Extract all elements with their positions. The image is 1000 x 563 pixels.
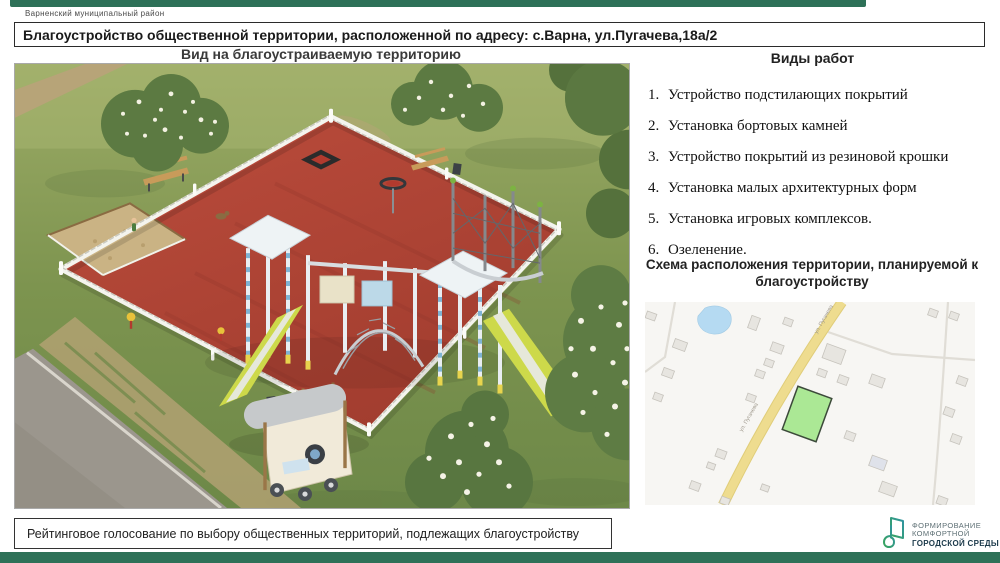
slide: Варненский муниципальный район Благоустр… — [0, 0, 1000, 563]
slide-title: Благоустройство общественной территории,… — [15, 27, 717, 43]
top-accent-bar — [10, 0, 866, 7]
works-item: 4.Установка малых архитектурных форм — [648, 179, 988, 197]
works-item-label: Установка малых архитектурных форм — [668, 180, 917, 196]
trash-bin — [452, 163, 461, 175]
map-heading: Схема расположения территории, планируем… — [642, 256, 982, 290]
fkgs-logo-text: ФОРМИРОВАНИЕ КОМФОРТНОЙ ГОРОДСКОЙ СРЕДЫ — [912, 518, 999, 549]
works-item-number: 5. — [648, 210, 668, 228]
location-map-art: ул. Пугачева ул. Пугачева — [645, 302, 975, 505]
fkgs-logo: ФОРМИРОВАНИЕ КОМФОРТНОЙ ГОРОДСКОЙ СРЕДЫ — [881, 514, 999, 552]
logo-line3: ГОРОДСКОЙ СРЕДЫ — [912, 540, 999, 549]
bottom-accent-bar — [0, 552, 1000, 563]
works-item-label: Установка бортовых камней — [668, 118, 848, 134]
works-item: 5.Установка игровых комплексов. — [648, 210, 988, 228]
pond — [698, 306, 732, 334]
works-heading: Виды работ — [640, 50, 985, 66]
works-item-label: Устройство покрытий из резиновой крошки — [668, 149, 948, 165]
municipality-label: Варненский муниципальный район — [25, 9, 164, 18]
works-item-label: Устройство подстилающих покрытий — [668, 87, 908, 103]
works-item-label: Установка игровых комплексов. — [668, 211, 872, 227]
fkgs-logo-icon — [881, 514, 907, 552]
works-item-number: 1. — [648, 86, 668, 104]
works-item: 1.Устройство подстилающих покрытий — [648, 86, 988, 104]
render-caption: Вид на благоустраиваемую территорию — [14, 46, 628, 62]
footer-note-box: Рейтинговое голосование по выбору общест… — [14, 518, 612, 549]
slide-title-box: Благоустройство общественной территории,… — [14, 22, 985, 47]
playground-render-art — [15, 64, 629, 508]
logo-line2: КОМФОРТНОЙ — [912, 530, 999, 539]
works-item: 2.Установка бортовых камней — [648, 117, 988, 135]
works-list: 1.Устройство подстилающих покрытий 2.Уст… — [648, 86, 988, 272]
location-map: ул. Пугачева ул. Пугачева — [645, 302, 975, 505]
child-figure — [131, 218, 136, 232]
works-item-number: 2. — [648, 117, 668, 135]
works-item-number: 3. — [648, 148, 668, 166]
footer-note: Рейтинговое голосование по выбору общест… — [15, 527, 579, 541]
playground-render — [14, 63, 630, 509]
works-item-number: 4. — [648, 179, 668, 197]
works-item: 3.Устройство покрытий из резиновой крошк… — [648, 148, 988, 166]
